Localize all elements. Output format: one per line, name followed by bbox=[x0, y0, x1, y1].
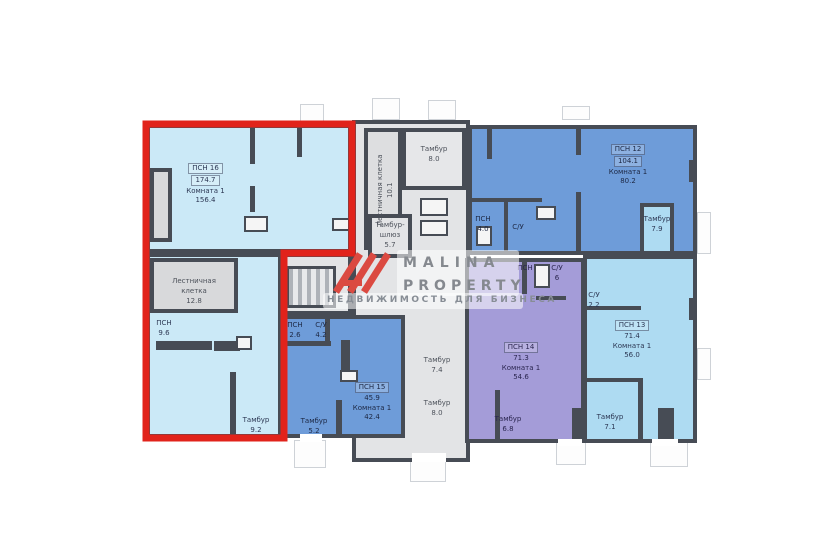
room-area: 9.6 bbox=[146, 329, 182, 338]
entrance-outline bbox=[410, 460, 446, 482]
room-area: 7.4 bbox=[414, 366, 460, 375]
room-area: 5.2 bbox=[292, 427, 336, 436]
room-area: 7.9 bbox=[639, 225, 675, 234]
room-area: 104.1 bbox=[614, 156, 642, 167]
room-area: 12.8 bbox=[152, 297, 236, 306]
room-name: Тамбур bbox=[292, 417, 336, 426]
subroom-name: Комната 1 bbox=[478, 364, 564, 373]
subroom-area: 54.6 bbox=[478, 373, 564, 382]
room-area: 5.7 bbox=[368, 241, 412, 250]
label-su-6: С/У 6 bbox=[544, 263, 570, 284]
label-tambur-74: Тамбур 7.4 bbox=[414, 355, 460, 376]
fixture bbox=[332, 218, 350, 231]
pillar bbox=[689, 298, 697, 320]
wall-stub bbox=[470, 198, 542, 202]
wall-stub bbox=[583, 378, 641, 382]
subroom-area: 42.4 bbox=[330, 413, 414, 422]
room-name: ПСН 16 bbox=[188, 163, 223, 174]
label-psn-96: ПСН 9.6 bbox=[146, 318, 182, 339]
room-area: 71.4 bbox=[588, 332, 676, 341]
label-tambur-80b: Тамбур 8.0 bbox=[414, 398, 460, 419]
room-area: 45.9 bbox=[330, 394, 414, 403]
room-area: 9.2 bbox=[234, 426, 278, 435]
subroom-name: Комната 1 bbox=[582, 168, 674, 177]
balcony-outline bbox=[697, 348, 711, 380]
wall-stub bbox=[638, 378, 643, 443]
room-name: Тамбур bbox=[486, 415, 530, 424]
room-name: ПСН 15 bbox=[355, 382, 390, 393]
subroom-area: 156.4 bbox=[158, 196, 253, 205]
fixture bbox=[244, 216, 268, 232]
entrance-outline bbox=[294, 440, 326, 468]
room-name: Тамбур bbox=[234, 416, 278, 425]
label-tambur-92: Тамбур 9.2 bbox=[234, 415, 278, 436]
floor-plan: ПСН 16 174.7 Комната 1 156.4 Лестничная … bbox=[0, 0, 837, 557]
fixture bbox=[536, 206, 556, 220]
room-name: Тамбур- bbox=[368, 221, 412, 230]
label-tambur-68: Тамбур 6.8 bbox=[486, 414, 530, 435]
label-psn12: ПСН 12 104.1 Комната 1 80.2 bbox=[582, 143, 674, 187]
room-name: С/У bbox=[306, 321, 336, 330]
room-name: С/У bbox=[544, 264, 570, 273]
room-name: Тамбур bbox=[414, 356, 460, 365]
subroom-name: Комната 1 bbox=[588, 342, 676, 351]
room-name: ПСН 12 bbox=[611, 144, 646, 155]
room-name: Тамбур bbox=[410, 145, 458, 154]
room-area: 8.0 bbox=[414, 409, 460, 418]
label-tambur-shluz: Тамбур- шлюз 5.7 bbox=[368, 220, 412, 250]
room-area: 71.3 bbox=[478, 354, 564, 363]
room-area: 4.0 bbox=[468, 225, 498, 234]
room-area: 7.1 bbox=[588, 423, 632, 432]
elevator-shaft bbox=[420, 220, 448, 236]
room-name: клетка bbox=[152, 287, 236, 296]
watermark-tagline: НЕДВИЖИМОСТЬ ДЛЯ БИЗНЕСА bbox=[327, 295, 557, 305]
room-name: ПСН bbox=[468, 215, 498, 224]
label-stair-left: Лестничная клетка 12.8 bbox=[152, 276, 236, 306]
door-gap bbox=[412, 453, 446, 462]
pillar bbox=[658, 408, 674, 442]
room-name: ПСН 14 bbox=[504, 342, 539, 353]
balcony-outline bbox=[428, 100, 456, 120]
balcony-outline bbox=[697, 212, 711, 254]
room-name: С/У bbox=[504, 223, 532, 232]
malina-logo bbox=[328, 250, 398, 294]
wall-stub bbox=[576, 192, 581, 252]
room-area: 2.6 bbox=[281, 331, 309, 340]
room-area: 4.2 bbox=[306, 331, 336, 340]
room-name: Тамбур bbox=[639, 215, 675, 224]
label-psn14: ПСН 14 71.3 Комната 1 54.6 bbox=[478, 341, 564, 383]
door-gap bbox=[558, 439, 582, 446]
room-area: 174.7 bbox=[191, 175, 219, 186]
room-area: 6.8 bbox=[486, 425, 530, 434]
label-su-42: С/У 4.2 bbox=[306, 320, 336, 341]
subroom-area: 80.2 bbox=[582, 177, 674, 186]
door-gap bbox=[652, 439, 678, 446]
label-tambur-79: Тамбур 7.9 bbox=[639, 214, 675, 235]
room-area: 6 bbox=[544, 274, 570, 283]
elevator-shaft bbox=[420, 198, 448, 216]
wall-stub bbox=[487, 125, 492, 159]
room-area: 8.0 bbox=[410, 155, 458, 164]
label-tambur-71: Тамбур 7.1 bbox=[588, 412, 632, 433]
wall-stub bbox=[297, 124, 302, 157]
label-su-a: С/У bbox=[504, 222, 532, 233]
room-name: Тамбур bbox=[414, 399, 460, 408]
room-name: ПСН bbox=[146, 319, 182, 328]
wall-stub bbox=[576, 125, 581, 155]
label-psn-40: ПСН 4.0 bbox=[468, 214, 498, 235]
subroom-name: Комната 1 bbox=[330, 404, 414, 413]
room-name: ПСН 13 bbox=[615, 320, 650, 331]
pillar bbox=[572, 408, 586, 442]
pillar bbox=[689, 160, 697, 182]
label-su-22: С/У 2.2 bbox=[580, 290, 608, 311]
label-psn13: ПСН 13 71.4 Комната 1 56.0 bbox=[588, 319, 676, 361]
label-psn16: ПСН 16 174.7 Комната 1 156.4 bbox=[158, 162, 253, 206]
room-name: ПСН bbox=[281, 321, 309, 330]
counter bbox=[156, 341, 212, 350]
subroom-name: Комната 1 bbox=[158, 187, 253, 196]
balcony-outline bbox=[372, 98, 400, 120]
balcony-outline bbox=[300, 104, 324, 124]
room-name: Тамбур bbox=[588, 413, 632, 422]
room-name: шлюз bbox=[368, 231, 412, 240]
wall-stub bbox=[341, 340, 350, 370]
room-area: 2.2 bbox=[580, 301, 608, 310]
label-tambur-80a: Тамбур 8.0 bbox=[410, 144, 458, 165]
room-name: Лестничная bbox=[152, 277, 236, 286]
balcony-outline bbox=[562, 106, 590, 120]
watermark-brand-1: MALINA bbox=[403, 255, 500, 271]
wall-stub bbox=[250, 124, 255, 164]
subroom-area: 56.0 bbox=[588, 351, 676, 360]
room-name: С/У bbox=[580, 291, 608, 300]
fixture bbox=[236, 336, 252, 350]
label-tambur-52: Тамбур 5.2 bbox=[292, 416, 336, 437]
label-psn-26: ПСН 2.6 bbox=[281, 320, 309, 341]
watermark-brand-2: PROPERTY bbox=[403, 278, 526, 294]
label-psn15: ПСН 15 45.9 Комната 1 42.4 bbox=[330, 381, 414, 423]
